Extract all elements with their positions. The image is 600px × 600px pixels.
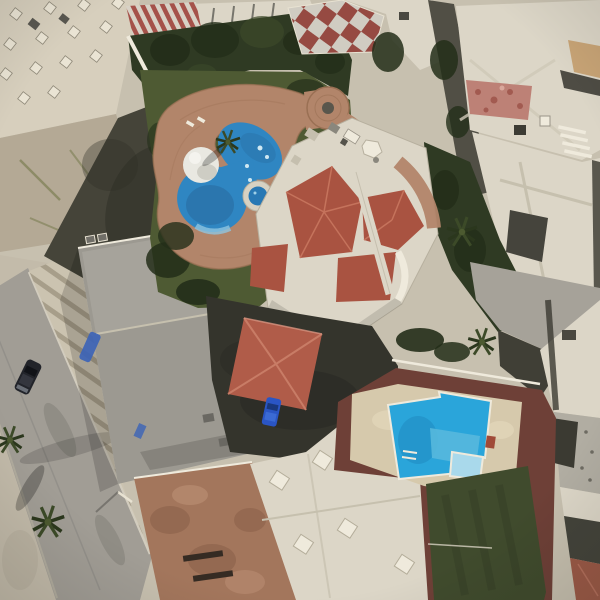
photo-vignette	[0, 0, 600, 600]
aerial-photo	[0, 0, 600, 600]
aerial-photo-canvas	[0, 0, 600, 600]
